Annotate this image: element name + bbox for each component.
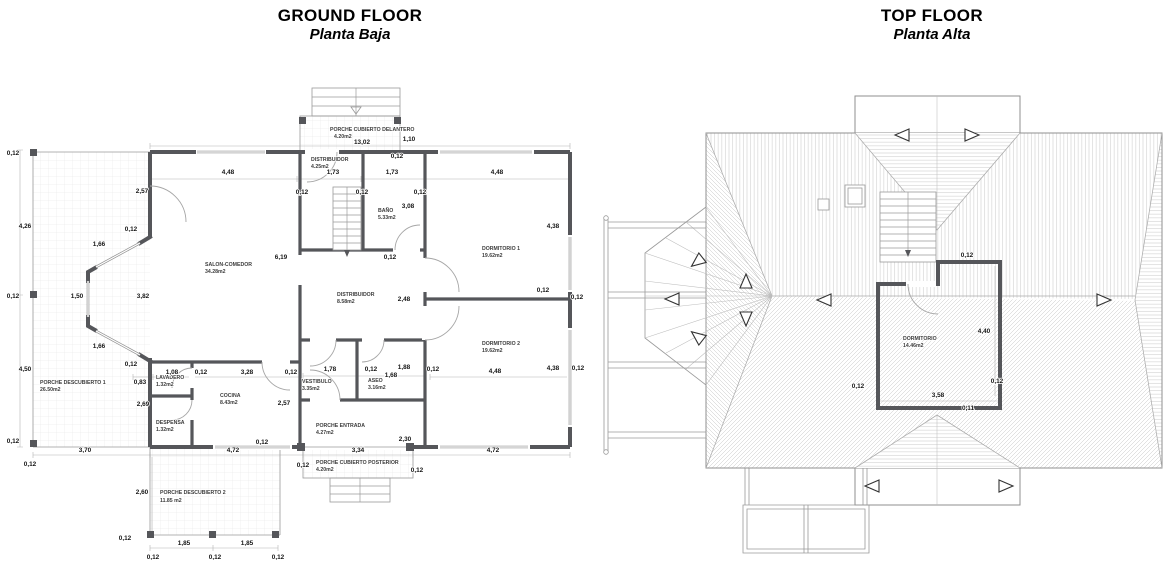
room-label-porche-descubierto2: PORCHE DESCUBIERTO 2 (160, 490, 226, 496)
room-label-despensa: DESPENSA (156, 420, 185, 426)
dim-label: 0,12 (119, 535, 132, 542)
dim-label: 4,50 (19, 366, 32, 373)
dim-label: 0,12 (365, 366, 378, 373)
dim-label: 1,66 (93, 343, 106, 350)
dim-label: 1,10 (403, 136, 416, 143)
dim-label: 1,68 (385, 372, 398, 379)
dim-label: 2,57 (278, 400, 291, 407)
room-area-dormitorio-top: 14.46m2 (903, 343, 924, 349)
dim-label: 3,34 (352, 447, 365, 454)
dim-label: 6,19 (275, 254, 288, 261)
room-area-porche-delantero: 4.20m2 (334, 134, 352, 140)
dim-label: 13,02 (354, 139, 370, 146)
room-area-salon: 34.28m2 (205, 269, 226, 275)
dim-label: 2,60 (136, 489, 149, 496)
room-label-porche-posterior: PORCHE CUBIERTO POSTERIOR (316, 460, 399, 466)
dim-label: 0,12 (356, 189, 369, 196)
dim-label: 3,58 (932, 392, 945, 399)
room-label-vestibulo: VESTIBULO (302, 379, 332, 385)
dim-label: 0,12 (297, 462, 310, 469)
dim-label: 1,66 (93, 241, 106, 248)
dim-label: 1,85 (241, 540, 254, 547)
stairs-ground-floor (333, 187, 361, 257)
dim-label: 1,85 (178, 540, 191, 547)
room-area-dormitorio1: 19.62m2 (482, 253, 503, 259)
room-label-bano: BAÑO (378, 207, 393, 214)
dim-label: 0,83 (134, 379, 147, 386)
dim-label: 4,72 (487, 447, 500, 454)
dim-label: 3,70 (79, 447, 92, 454)
dim-label: 0,12 (571, 294, 584, 301)
dim-label: 4,26 (19, 223, 32, 230)
dim-label: 4,38 (547, 223, 560, 230)
room-label-cocina: COCINA (220, 393, 241, 399)
dim-label: 0,12 (427, 366, 440, 373)
room-area-vestibulo: 3.35m2 (302, 386, 320, 392)
room-area-lavadero: 1.32m2 (156, 382, 174, 388)
dim-label: 1,73 (327, 169, 340, 176)
room-area-despensa: 1.32m2 (156, 427, 174, 433)
dim-label: 1,08 (166, 369, 179, 376)
dim-label: 0,12 (7, 293, 20, 300)
dim-label: 4,38 (547, 365, 560, 372)
dim-label: 0,12 (7, 438, 20, 445)
dim-label: 3,82 (137, 293, 150, 300)
dim-label: 0,12 (7, 150, 20, 157)
dim-label: 0,12 (125, 361, 138, 368)
dim-label: 0,12 (24, 461, 37, 468)
top-floor-plan: DORMITORIO 14.46m2 0,12 4,40 0,12 0,12 3… (604, 96, 1162, 553)
dim-label: 4,40 (978, 328, 991, 335)
roof-arrow-downleft-icon (688, 327, 706, 345)
dim-label: 0,12 (125, 226, 138, 233)
dim-label: 0,12 (195, 369, 208, 376)
dim-label: 2,57 (136, 188, 149, 195)
dim-label: 0,11 (962, 405, 975, 412)
room-area-cocina: 8.43m2 (220, 400, 238, 406)
dim-label: 0,12 (285, 369, 298, 376)
dim-label: 0,12 (572, 365, 585, 372)
dim-label: 2,48 (398, 296, 411, 303)
room-label-dormitorio-top: DORMITORIO (903, 336, 937, 342)
ground-floor-plan: PORCHE CUBIERTO DELANTERO 4.20m2 DISTRIB… (7, 88, 585, 561)
room-area-aseo: 3.16m2 (368, 385, 386, 391)
stairs-top-floor (880, 192, 936, 262)
dim-label: 1,73 (386, 169, 399, 176)
room-area-porche-descubierto2: 11.85 m2 (160, 498, 182, 504)
room-label-dormitorio2: DORMITORIO 2 (482, 341, 520, 347)
dim-label: 2,69 (137, 401, 150, 408)
dim-label: 4,48 (489, 368, 502, 375)
room-label-porche-delantero: PORCHE CUBIERTO DELANTERO (330, 127, 414, 133)
room-area-porche-descubierto1: 26.50m2 (40, 387, 61, 393)
room-label-aseo: ASEO (368, 378, 383, 384)
dim-label: 3,08 (402, 203, 415, 210)
bottom-left-pergola (743, 468, 869, 553)
room-label-salon: SALON-COMEDOR (205, 262, 252, 268)
dim-label: 0,12 (209, 554, 222, 561)
room-label-porche-descubierto1: PORCHE DESCUBIERTO 1 (40, 380, 106, 386)
room-area-porche-posterior: 4.20m2 (316, 467, 334, 473)
dim-label: 0,12 (384, 254, 397, 261)
roof-arrow-right-icon (999, 480, 1013, 492)
dim-label: 4,72 (227, 447, 240, 454)
dim-label: 0,12 (414, 189, 427, 196)
roof-arrow-left-icon (665, 293, 679, 305)
floorplan-canvas: PORCHE CUBIERTO DELANTERO 4.20m2 DISTRIB… (0, 0, 1176, 568)
dim-label: 4,48 (491, 169, 504, 176)
room-label-distribuidor-top: DISTRIBUIDOR (311, 157, 349, 163)
dim-label: 4,48 (222, 169, 235, 176)
dim-label: 0,12 (256, 439, 269, 446)
room-label-distribuidor: DISTRIBUIDOR (337, 292, 375, 298)
dim-label: 0,12 (537, 287, 550, 294)
dim-label: 1,78 (324, 366, 337, 373)
room-label-porche-entrada: PORCHE ENTRADA (316, 423, 365, 429)
dim-label: 0,12 (147, 554, 160, 561)
floor-plan-sheet: GROUND FLOOR Planta Baja TOP FLOOR Plant… (0, 0, 1176, 568)
room-area-dormitorio2: 19.62m2 (482, 348, 503, 354)
dim-label: 0,12 (852, 383, 865, 390)
room-area-porche-entrada: 4.27m2 (316, 430, 334, 436)
room-area-bano: 5.33m2 (378, 215, 396, 221)
dim-label: 2,30 (399, 436, 412, 443)
dim-label: 0,12 (411, 467, 424, 474)
room-area-distribuidor: 8.58m2 (337, 299, 355, 305)
dim-label: 0,12 (272, 554, 285, 561)
dim-label: 0,12 (296, 189, 309, 196)
dim-label: 0,12 (961, 252, 974, 259)
dim-label: 3,28 (241, 369, 254, 376)
room-label-dormitorio1: DORMITORIO 1 (482, 246, 520, 252)
dim-label: 0,12 (991, 378, 1004, 385)
dim-label: 1,88 (398, 364, 411, 371)
dim-label: 0,12 (391, 153, 404, 160)
dim-label: 1,50 (71, 293, 84, 300)
